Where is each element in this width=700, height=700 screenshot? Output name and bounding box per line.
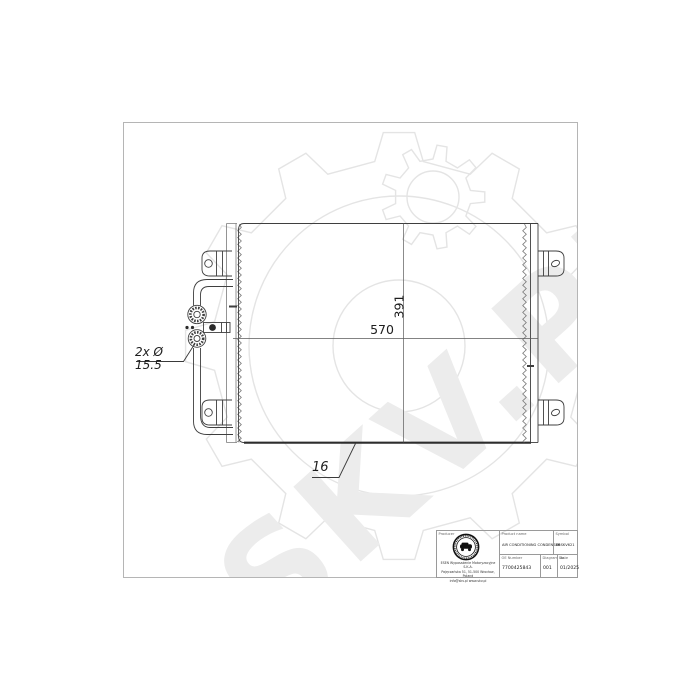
drawing-page: SKV.PL — [0, 0, 700, 700]
symbol-label: Symbol — [556, 532, 569, 536]
bracket-bottom-left — [202, 400, 232, 425]
left-side-plate — [227, 224, 242, 443]
oe-number-value: 7700425843 — [502, 566, 531, 571]
bracket-top-right — [538, 251, 564, 276]
bracket-bottom-right — [538, 400, 564, 425]
title-block-date-cell: Date 01/2025 — [557, 554, 578, 578]
symbol-value: 86SKV621 — [556, 543, 575, 547]
dimension-width-label: 570 — [362, 323, 402, 336]
title-block-symbol-cell: Symbol 86SKV621 — [553, 530, 578, 555]
refrigerant-pipe — [194, 280, 234, 435]
ports-diameter-note: 2x Ø 15.5 — [135, 346, 187, 372]
title-block-diagram-cell: Diagram No. 001 — [540, 554, 558, 578]
company-line: ESEN Wyposażenie Motoryzacyjne S.K.A. — [437, 561, 499, 570]
skv-stamp-logo — [452, 533, 480, 561]
diagram-no-value: 001 — [543, 566, 552, 571]
core-depth-note: 16 — [312, 461, 342, 474]
title-block-oe-cell: OE Number 7700425843 — [499, 554, 541, 578]
date-value: 01/2025 — [560, 566, 579, 571]
producer-company-info: ESEN Wyposażenie Motoryzacyjne S.K.A. Pa… — [437, 561, 499, 583]
port-fitting-top — [188, 305, 206, 323]
bracket-top-left — [202, 251, 232, 276]
condenser-drawing — [0, 0, 700, 700]
dimension-height-label: 391 — [393, 292, 406, 322]
date-label: Date — [560, 556, 569, 560]
company-line: Pajęczańska 51, 51-500 Wrocław, Poland — [437, 570, 499, 579]
product-name-value: AIR CONDITIONING CONDENSER — [502, 543, 560, 547]
product-name-label: Product name — [502, 532, 527, 536]
oe-number-label: OE Number — [502, 556, 523, 560]
company-line: info@skv.pl www.skv.pl — [437, 579, 499, 583]
title-block-product-cell: Product name AIR CONDITIONING CONDENSER — [499, 530, 554, 555]
